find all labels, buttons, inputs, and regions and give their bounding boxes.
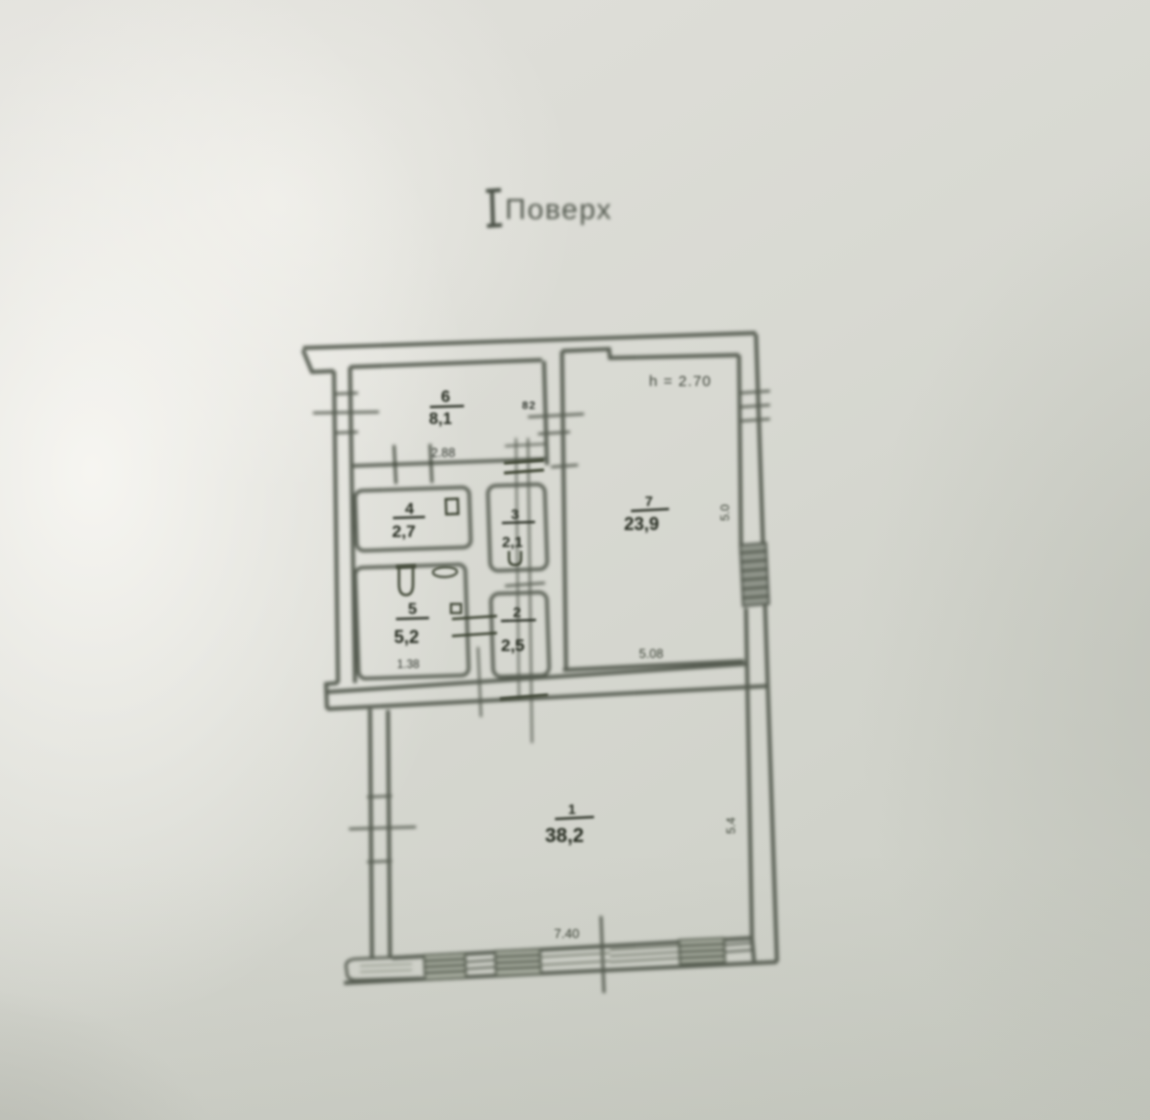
svg-text:h = 2.70: h = 2.70 [649,373,712,390]
svg-text:82: 82 [522,400,536,412]
svg-text:5.4: 5.4 [724,817,738,834]
svg-text:1.38: 1.38 [397,659,419,671]
svg-text:2,5: 2,5 [501,636,525,655]
svg-text:5.0: 5.0 [718,504,732,521]
svg-text:8,1: 8,1 [429,410,452,428]
svg-text:2.88: 2.88 [431,446,455,460]
svg-text:7: 7 [645,493,653,509]
svg-text:5: 5 [408,601,417,618]
svg-text:1: 1 [568,801,576,817]
svg-text:4: 4 [405,501,414,518]
svg-text:38,2: 38,2 [545,825,584,847]
svg-text:2,7: 2,7 [392,522,416,541]
svg-text:5.08: 5.08 [639,647,663,661]
svg-text:7.40: 7.40 [554,926,579,941]
svg-text:5,2: 5,2 [394,627,419,647]
svg-text:2: 2 [513,604,521,620]
svg-text:2,1: 2,1 [502,534,523,551]
svg-text:3: 3 [511,506,519,522]
svg-text:23,9: 23,9 [624,514,659,534]
svg-text:6: 6 [441,388,450,406]
